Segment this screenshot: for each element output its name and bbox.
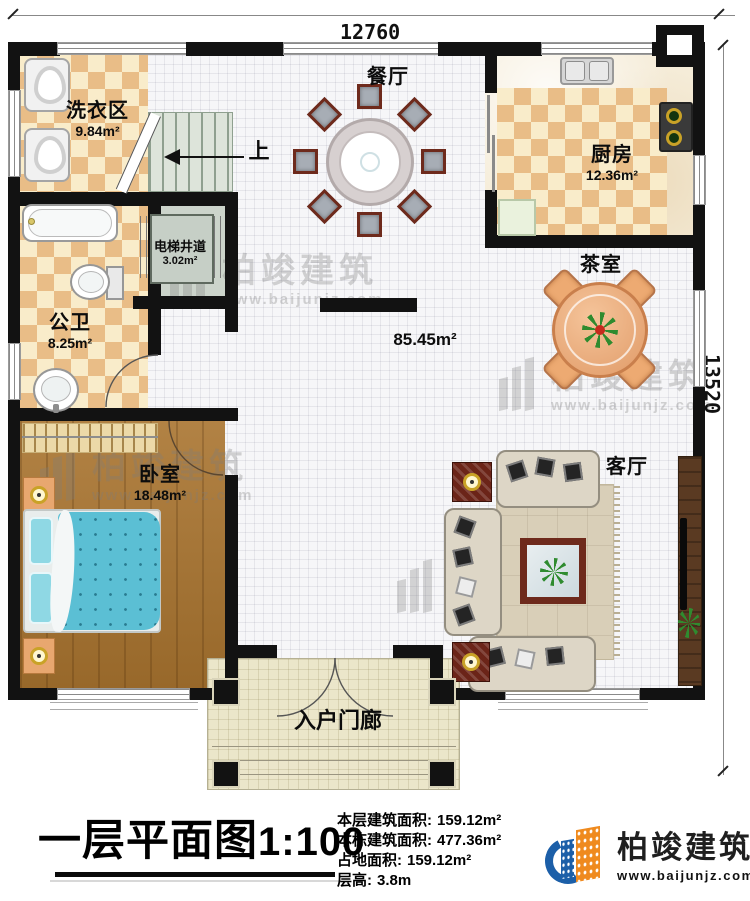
company-logo-icon	[545, 824, 607, 890]
stairs-direction-label: 上	[246, 140, 272, 164]
stairs-up-text: 上	[246, 140, 272, 164]
window	[57, 688, 190, 700]
room-label-dining: 餐厅	[358, 66, 418, 89]
stat-value: 159.12m²	[437, 811, 501, 831]
washing-machine-drum	[34, 66, 66, 104]
staircase	[148, 112, 233, 192]
room-name: 洗衣区	[45, 100, 150, 123]
wall-segment	[225, 475, 238, 700]
nightstand-lamp	[30, 486, 48, 504]
hall-area-label: 85.45m²	[380, 330, 470, 350]
title-underline	[55, 872, 335, 877]
stat-value: 3.8m	[377, 871, 411, 891]
wall-segment	[8, 688, 57, 700]
room-label-living: 客厅	[596, 456, 658, 479]
dining-chair	[357, 212, 382, 237]
room-area: 85.45m²	[380, 330, 470, 350]
wall-segment	[485, 235, 705, 248]
porch-column	[214, 680, 238, 704]
window	[283, 42, 439, 55]
title-underline-shadow	[50, 880, 340, 882]
plan-title-text: 一层平面图	[38, 817, 258, 865]
porch-column	[430, 762, 454, 786]
nightstand-lamp	[30, 647, 48, 665]
room-label-porch: 入户门廊	[280, 708, 396, 733]
stove-burner	[666, 108, 682, 124]
wall-segment	[133, 296, 225, 309]
wall-segment	[225, 192, 238, 332]
window	[8, 90, 21, 177]
room-name: 茶室	[570, 254, 632, 277]
kitchen-sliding-door	[487, 95, 490, 153]
dining-chair	[293, 149, 318, 174]
room-label-bathroom: 公卫 8.25m²	[22, 312, 118, 351]
wall-segment	[485, 42, 497, 93]
wall-segment	[8, 42, 20, 90]
living-rug-fringe	[614, 486, 620, 658]
porch-step-line	[212, 774, 456, 775]
window	[693, 290, 706, 387]
room-name: 入户门廊	[280, 708, 396, 733]
wardrobe	[22, 423, 158, 453]
building-stats: 本层建筑面积:159.12m² 本栋建筑面积:477.36m² 占地面积:159…	[337, 811, 501, 891]
dimension-tick	[713, 8, 724, 19]
wall-segment	[8, 400, 20, 700]
bathtub-inner	[28, 209, 112, 237]
wall-segment	[640, 688, 705, 700]
sofa-pillow	[563, 462, 583, 482]
company-logo-brand: 柏竣建筑	[617, 831, 750, 865]
company-logo: 柏竣建筑 www.baijunjz.com	[545, 824, 750, 890]
tv-cabinet-plant	[678, 608, 700, 638]
window	[541, 42, 653, 55]
wall-segment	[693, 42, 705, 155]
refrigerator	[498, 199, 536, 236]
room-label-laundry: 洗衣区 9.84m²	[45, 100, 150, 139]
plan-title: 一层平面图1:100	[38, 806, 365, 868]
wall-segment	[237, 645, 277, 658]
room-label-kitchen: 厨房 12.36m²	[562, 144, 662, 183]
room-area: 3.02m²	[134, 255, 226, 268]
kitchen-sink-basin	[589, 61, 609, 81]
room-area: 9.84m²	[45, 123, 150, 139]
wardrobe-rail	[22, 436, 158, 438]
wall-segment	[186, 42, 284, 56]
stove-burner	[666, 130, 682, 146]
tv-screen	[680, 518, 687, 610]
wall-segment	[320, 298, 417, 312]
side-table-lamp	[462, 653, 480, 671]
coffee-table-plant	[540, 558, 568, 586]
toilet-seat	[78, 271, 104, 293]
stat-row: 本层建筑面积:159.12m²	[337, 811, 501, 831]
room-label-tea: 茶室	[570, 254, 632, 277]
room-area: 8.25m²	[22, 335, 118, 351]
bed-pillow	[29, 517, 53, 565]
kitchen-sliding-door	[492, 135, 495, 192]
stat-value: 477.36m²	[437, 831, 501, 851]
room-name: 厨房	[562, 144, 662, 167]
bathtub-faucet	[28, 218, 35, 225]
room-area: 12.36m²	[562, 167, 662, 183]
room-label-bedroom: 卧室 18.48m²	[112, 464, 208, 503]
stat-label: 本层建筑面积:	[337, 811, 432, 831]
washing-machine-drum	[34, 136, 66, 174]
window-sill	[498, 702, 648, 710]
room-name: 公卫	[22, 312, 118, 335]
sofa-pillow	[514, 648, 535, 669]
tea-table-plant-center	[595, 325, 605, 335]
dimension-tick	[7, 8, 18, 19]
chimney-flue	[667, 35, 692, 55]
room-name: 餐厅	[358, 66, 418, 89]
floor-plan-page: 12760 13520 柏竣建筑 www.baijunjz.com 柏竣建筑 w…	[0, 0, 750, 901]
window	[8, 343, 21, 400]
room-name: 客厅	[596, 456, 658, 479]
window	[57, 42, 188, 55]
sofa-pillow	[452, 546, 473, 567]
bathroom-sink-tap	[53, 404, 59, 413]
wall-segment	[8, 408, 238, 421]
sofa-pillow	[535, 457, 556, 478]
stat-row: 本栋建筑面积:477.36m²	[337, 831, 501, 851]
stat-row: 占地面积:159.12m²	[337, 851, 501, 871]
room-area: 18.48m²	[112, 487, 208, 503]
dining-table-center	[360, 152, 380, 172]
porch-step-line	[212, 760, 456, 761]
porch-column	[430, 680, 454, 704]
side-table-lamp	[463, 473, 481, 491]
window-sill	[50, 702, 198, 710]
porch-step-line	[212, 746, 456, 747]
bathroom-sink-basin	[41, 376, 71, 402]
stat-value: 159.12m²	[407, 851, 471, 871]
dining-chair	[421, 149, 446, 174]
stat-label: 本栋建筑面积:	[337, 831, 432, 851]
window	[693, 155, 706, 205]
room-name: 卧室	[112, 464, 208, 487]
stat-label: 占地面积:	[337, 851, 402, 871]
dimension-line-top	[12, 15, 735, 16]
porch-column	[214, 762, 238, 786]
sofa-pillow	[545, 646, 565, 666]
company-logo-url: www.baijunjz.com	[617, 868, 750, 883]
dimension-label-top: 12760	[340, 20, 400, 44]
room-label-elevator: 电梯井道 3.02m²	[134, 240, 226, 268]
room-name: 电梯井道	[134, 240, 226, 255]
stat-label: 层高:	[337, 871, 372, 891]
kitchen-sink-basin	[565, 61, 585, 81]
stat-row: 层高:3.8m	[337, 871, 501, 891]
